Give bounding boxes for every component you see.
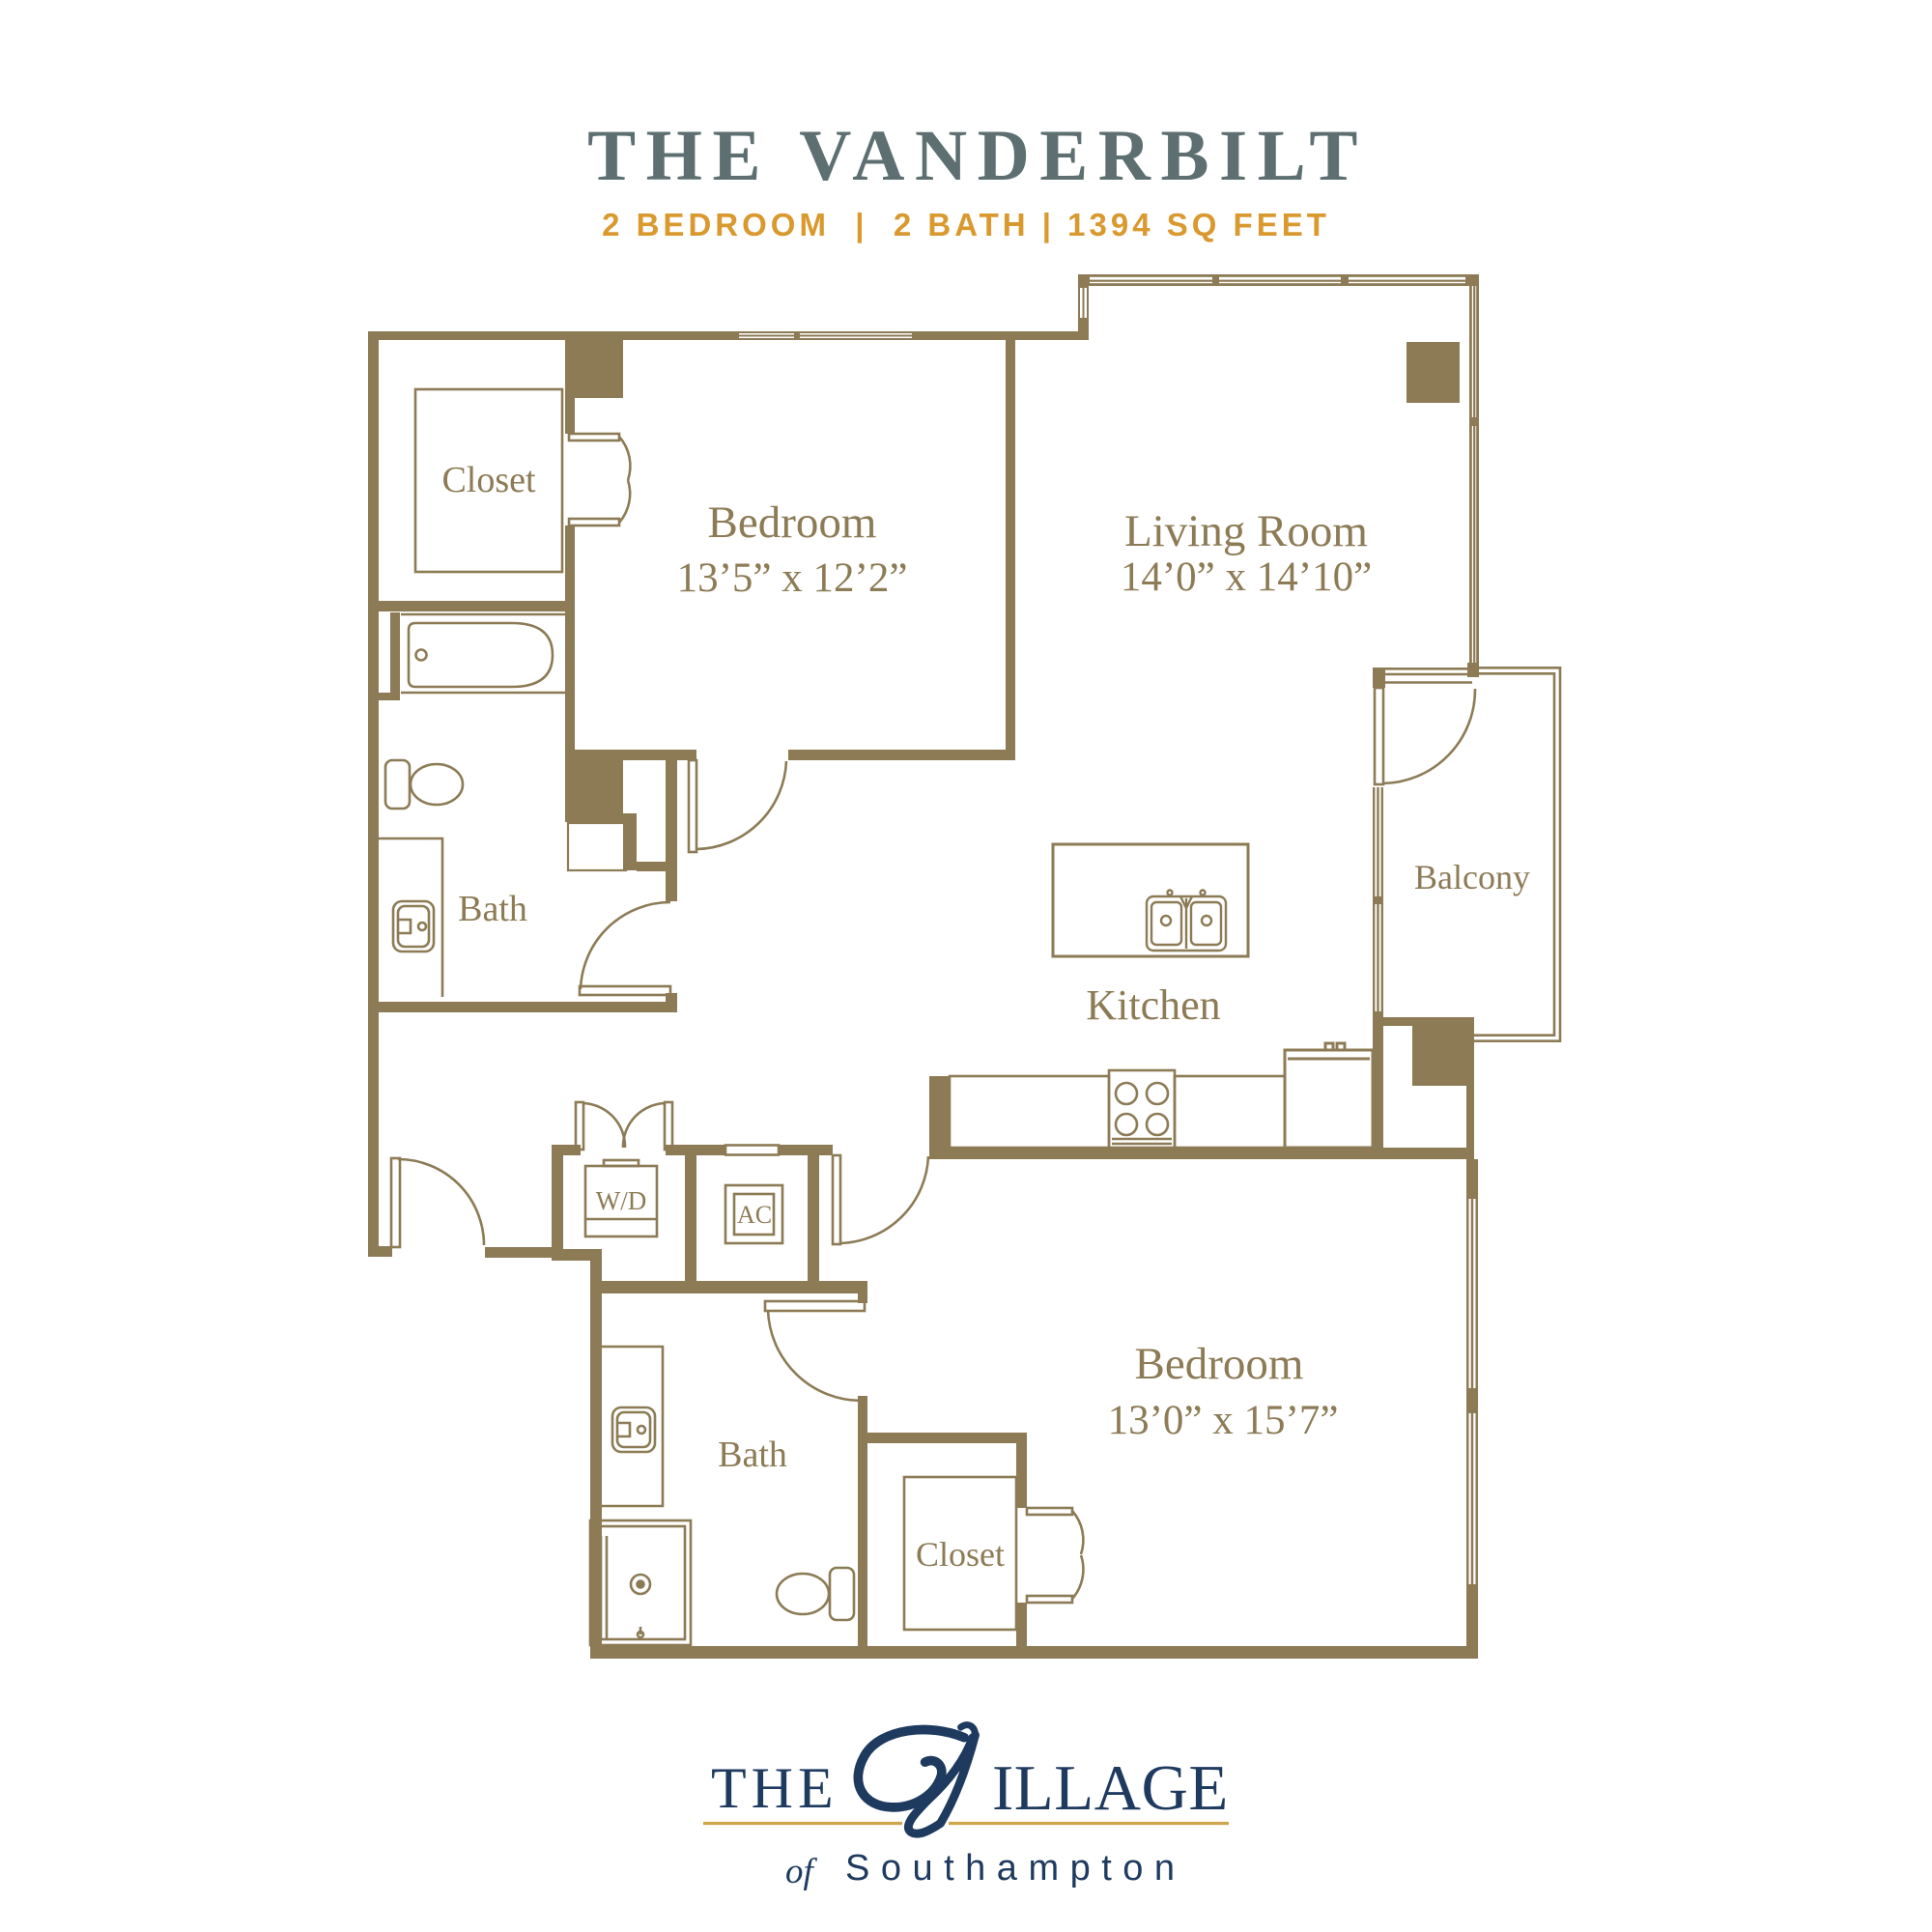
- svg-text:ILLAGE: ILLAGE: [992, 1752, 1229, 1824]
- svg-text:Bath: Bath: [458, 889, 527, 929]
- svg-text:W/D: W/D: [596, 1186, 646, 1215]
- svg-text:Southampton: Southampton: [845, 1848, 1186, 1889]
- svg-text:14’0” x 14’10”: 14’0” x 14’10”: [1121, 554, 1372, 600]
- svg-text:Bath: Bath: [718, 1435, 787, 1475]
- svg-text:Closet: Closet: [441, 460, 536, 500]
- svg-text:13’0” x 15’7”: 13’0” x 15’7”: [1108, 1398, 1339, 1443]
- svg-text:13’5” x 12’2”: 13’5” x 12’2”: [677, 555, 908, 601]
- svg-text:Kitchen: Kitchen: [1086, 981, 1220, 1029]
- svg-text:AC: AC: [737, 1201, 772, 1229]
- svg-text:of: of: [785, 1852, 818, 1891]
- svg-text:Bedroom: Bedroom: [708, 497, 877, 548]
- svg-text:Balcony: Balcony: [1414, 858, 1530, 896]
- svg-text:Living Room: Living Room: [1124, 506, 1368, 556]
- svg-text:Closet: Closet: [916, 1535, 1005, 1574]
- svg-text:Bedroom: Bedroom: [1135, 1339, 1304, 1389]
- svg-text:THE: THE: [711, 1756, 838, 1820]
